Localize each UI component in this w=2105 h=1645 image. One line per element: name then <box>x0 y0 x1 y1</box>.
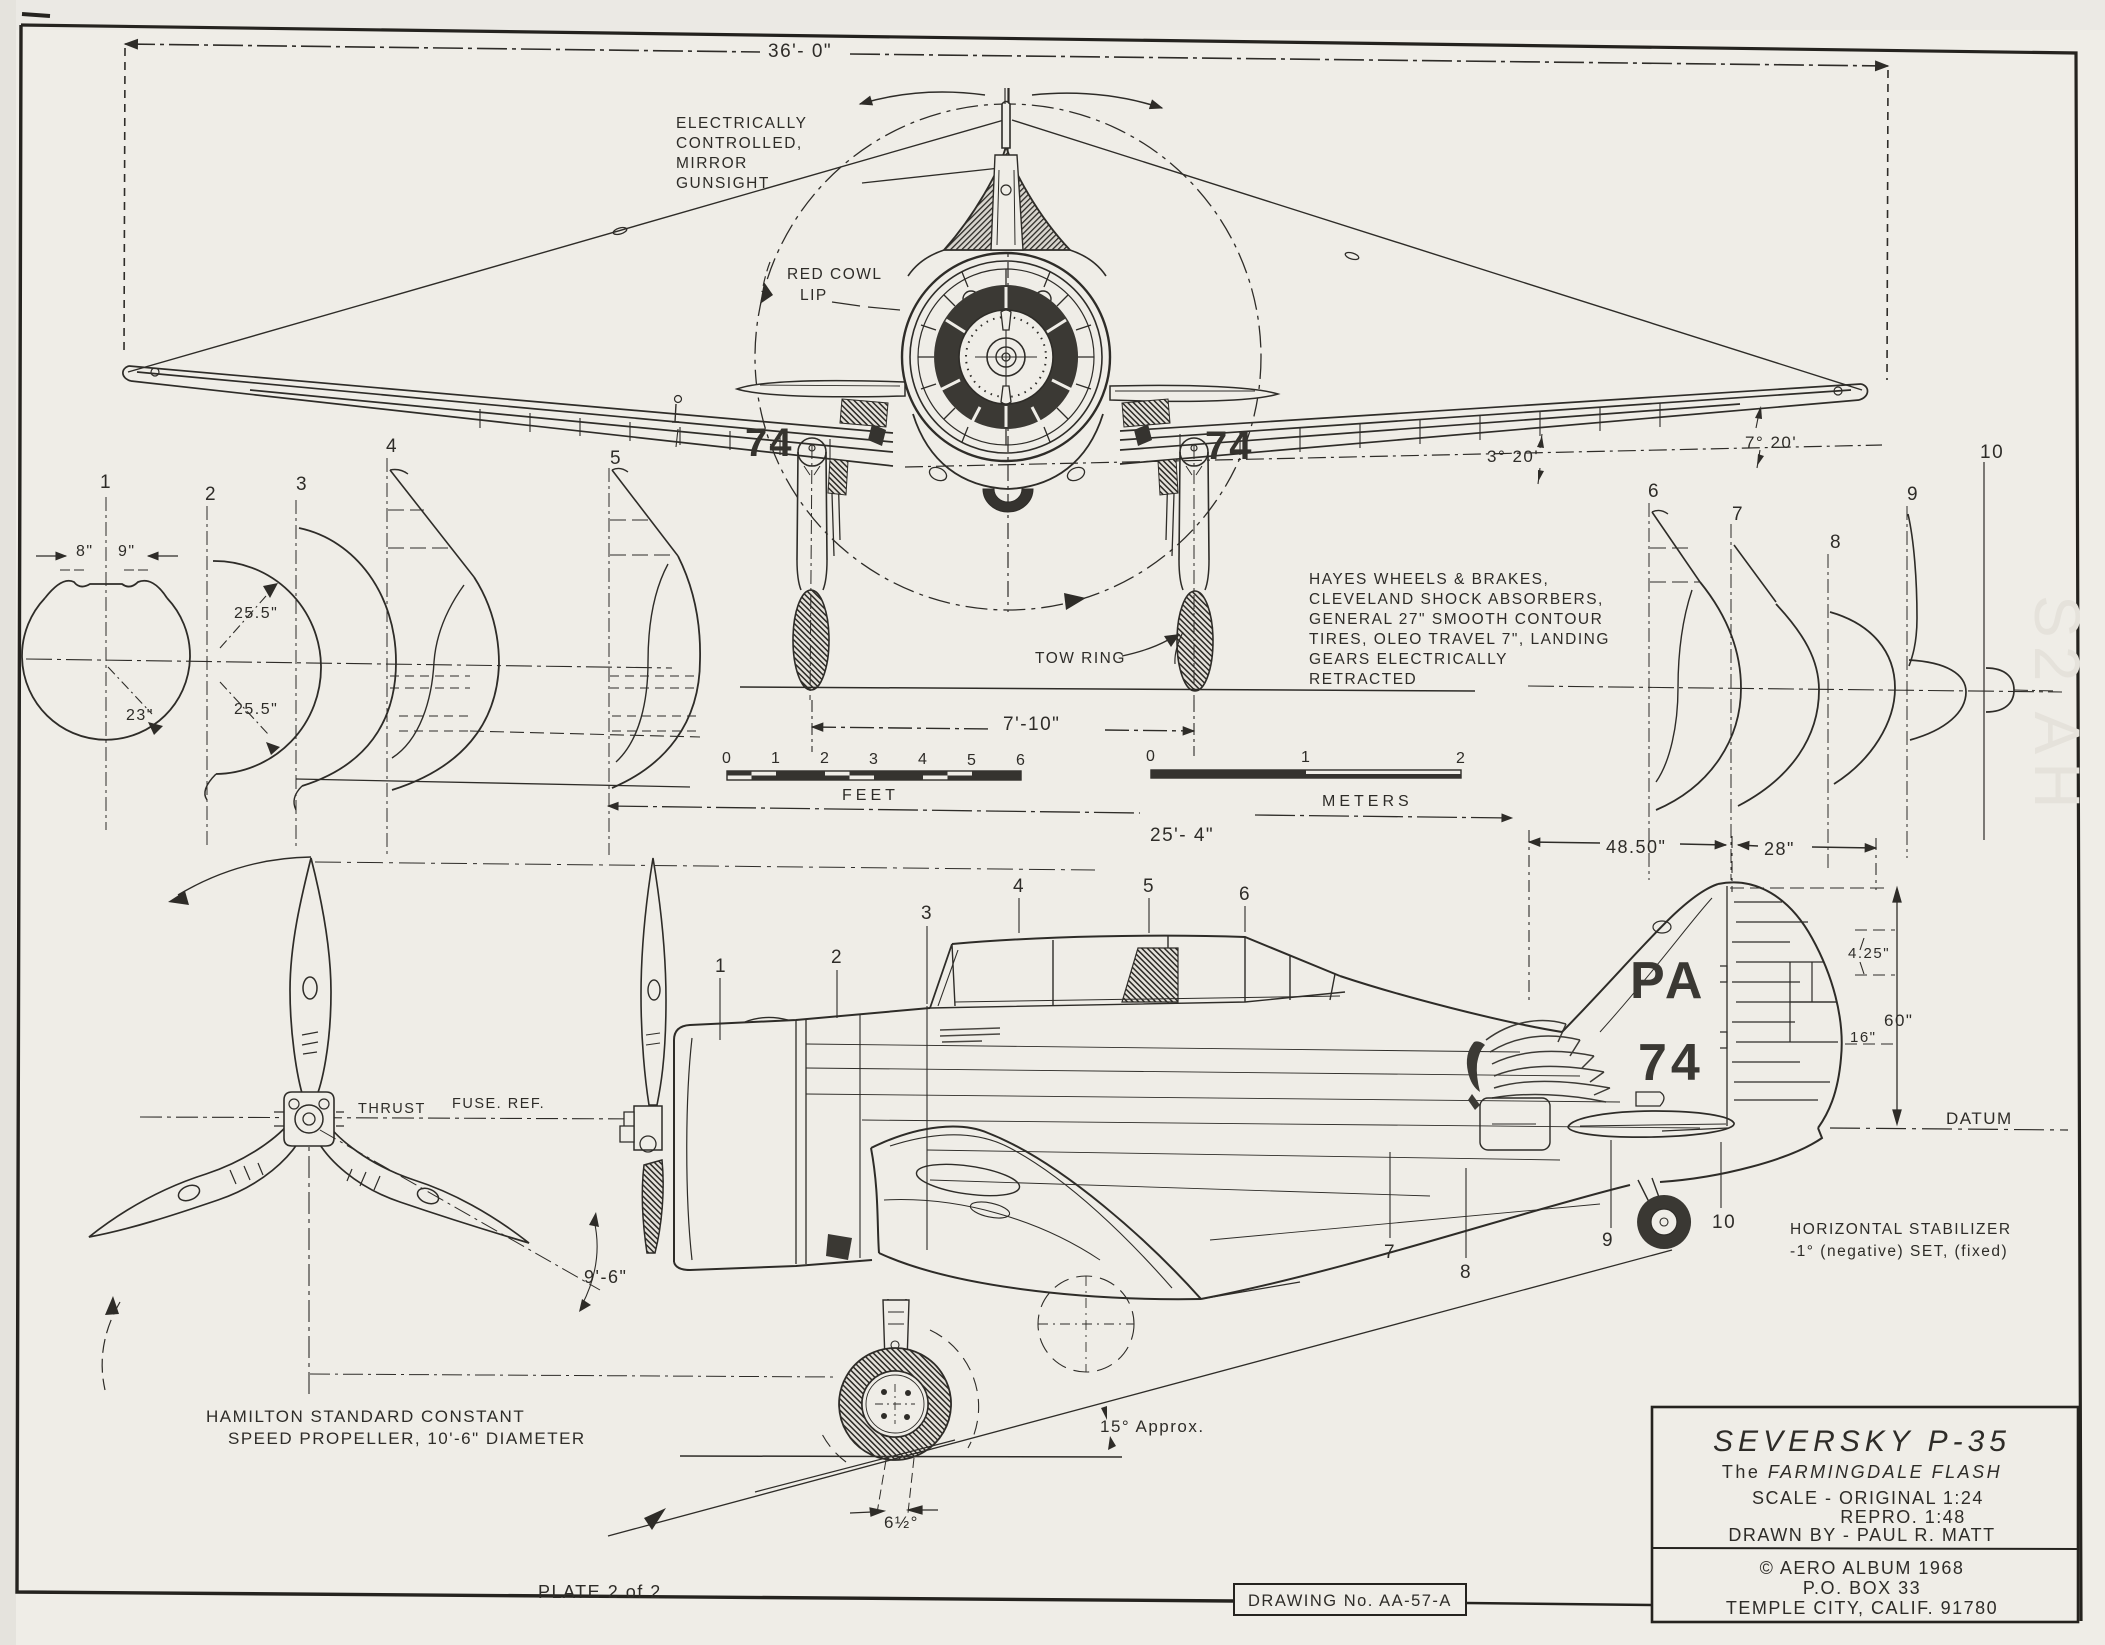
svg-text:1: 1 <box>100 472 112 493</box>
svg-text:CLEVELAND SHOCK ABSORBERS,: CLEVELAND SHOCK ABSORBERS, <box>1309 591 1604 608</box>
svg-text:RED COWL: RED COWL <box>787 266 883 283</box>
svg-text:GEARS ELECTRICALLY: GEARS ELECTRICALLY <box>1309 651 1508 668</box>
svg-text:4: 4 <box>918 751 928 768</box>
svg-text:25'- 4": 25'- 4" <box>1150 825 1214 846</box>
svg-text:9'-6": 9'-6" <box>584 1267 627 1287</box>
svg-text:DATUM: DATUM <box>1946 1109 2013 1128</box>
svg-text:THRUST: THRUST <box>358 1101 426 1117</box>
svg-text:LIP: LIP <box>800 287 828 304</box>
svg-text:HAYES WHEELS & BRAKES,: HAYES WHEELS & BRAKES, <box>1309 571 1549 588</box>
svg-text:TOW RING: TOW RING <box>1035 650 1126 667</box>
svg-text:5: 5 <box>610 448 622 469</box>
svg-text:CONTROLLED,: CONTROLLED, <box>676 135 803 152</box>
svg-text:28": 28" <box>1764 839 1795 859</box>
svg-text:SEVERSKY P-35: SEVERSKY P-35 <box>1713 1425 2011 1458</box>
svg-text:FEET: FEET <box>842 787 899 804</box>
svg-text:MIRROR: MIRROR <box>676 155 748 172</box>
svg-text:74: 74 <box>745 421 794 465</box>
svg-text:3: 3 <box>296 474 308 495</box>
svg-text:6½°: 6½° <box>884 1513 919 1532</box>
svg-text:1: 1 <box>771 750 781 767</box>
svg-text:3: 3 <box>921 903 933 924</box>
svg-text:S2 AH: S2 AH <box>2021 595 2093 816</box>
svg-text:DRAWING No. AA-57-A: DRAWING No. AA-57-A <box>1248 1592 1452 1610</box>
svg-text:8: 8 <box>1830 532 1842 553</box>
svg-text:1: 1 <box>1301 749 1311 766</box>
svg-text:SPEED PROPELLER, 10'-6" DIAM: SPEED PROPELLER, 10'-6" DIAMETER <box>228 1429 586 1448</box>
svg-text:25.5": 25.5" <box>234 701 278 718</box>
svg-text:6: 6 <box>1239 884 1251 905</box>
svg-text:60": 60" <box>1884 1011 1913 1030</box>
svg-text:RETRACTED: RETRACTED <box>1309 671 1417 688</box>
svg-text:TIRES, OLEO TRAVEL 7", LAN: TIRES, OLEO TRAVEL 7", LANDING <box>1309 631 1610 648</box>
svg-text:5: 5 <box>967 752 977 769</box>
svg-text:7° 20': 7° 20' <box>1745 433 1797 452</box>
svg-text:GUNSIGHT: GUNSIGHT <box>676 175 770 192</box>
svg-text:6: 6 <box>1016 752 1026 769</box>
svg-text:2: 2 <box>820 750 830 767</box>
svg-text:3: 3 <box>869 751 879 768</box>
svg-text:7: 7 <box>1732 504 1744 525</box>
svg-text:PLATE 2 of 2: PLATE 2 of 2 <box>538 1582 662 1602</box>
svg-text:REPRO. 1:48: REPRO. 1:48 <box>1840 1507 1966 1527</box>
svg-text:4: 4 <box>1013 876 1025 897</box>
svg-text:2: 2 <box>205 484 217 505</box>
svg-text:-1° (negative) SET, (fixed): -1° (negative) SET, (fixed) <box>1790 1243 2008 1260</box>
svg-text:9": 9" <box>118 543 136 560</box>
svg-text:16": 16" <box>1850 1029 1877 1046</box>
svg-text:FUSE. REF.: FUSE. REF. <box>452 1096 545 1112</box>
svg-text:PA: PA <box>1630 952 1706 1010</box>
svg-text:1: 1 <box>715 956 727 977</box>
svg-text:9: 9 <box>1602 1230 1614 1251</box>
svg-text:ELECTRICALLY: ELECTRICALLY <box>676 115 807 132</box>
svg-text:TEMPLE CITY, CALIF. 91780: TEMPLE CITY, CALIF. 91780 <box>1726 1598 1998 1618</box>
svg-text:2: 2 <box>1456 750 1466 767</box>
svg-text:SCALE - ORIGINAL 1:24: SCALE - ORIGINAL 1:24 <box>1752 1488 1984 1508</box>
svg-text:6: 6 <box>1648 481 1660 502</box>
svg-text:4: 4 <box>386 436 398 457</box>
svg-text:23": 23" <box>126 707 154 724</box>
svg-text:HORIZONTAL STABILIZER: HORIZONTAL STABILIZER <box>1790 1221 2012 1238</box>
svg-text:© AERO ALBUM 1968: © AERO ALBUM 1968 <box>1760 1558 1965 1578</box>
svg-text:3° 20': 3° 20' <box>1487 447 1539 466</box>
svg-text:DRAWN BY - PAUL R. MATT: DRAWN BY - PAUL R. MATT <box>1728 1525 1995 1545</box>
svg-text:36'- 0": 36'- 0" <box>768 41 832 62</box>
svg-text:5: 5 <box>1143 876 1155 897</box>
svg-text:HAMILTON STANDARD CONSTANT: HAMILTON STANDARD CONSTANT <box>206 1407 525 1426</box>
svg-text:0: 0 <box>1146 748 1156 765</box>
svg-text:2: 2 <box>831 947 843 968</box>
svg-text:74: 74 <box>1638 1034 1704 1092</box>
svg-text:P.O. BOX 33: P.O. BOX 33 <box>1803 1578 1921 1598</box>
svg-text:METERS: METERS <box>1322 793 1413 810</box>
svg-text:15° Approx.: 15° Approx. <box>1100 1417 1205 1436</box>
svg-text:0: 0 <box>722 750 732 767</box>
svg-text:4.25": 4.25" <box>1848 945 1890 962</box>
svg-text:9: 9 <box>1907 484 1919 505</box>
svg-text:74: 74 <box>1205 424 1254 468</box>
svg-text:8": 8" <box>76 543 94 560</box>
svg-text:The FARMINGDALE FLASH: The FARMINGDALE FLASH <box>1722 1462 2002 1482</box>
svg-text:10: 10 <box>1712 1212 1736 1233</box>
svg-text:10: 10 <box>1980 442 2004 463</box>
svg-text:7'-10": 7'-10" <box>1003 714 1060 735</box>
svg-text:GENERAL 27" SMOOTH CONTOUR: GENERAL 27" SMOOTH CONTOUR <box>1309 611 1603 628</box>
svg-text:8: 8 <box>1460 1262 1472 1283</box>
svg-text:48.50": 48.50" <box>1606 837 1666 857</box>
